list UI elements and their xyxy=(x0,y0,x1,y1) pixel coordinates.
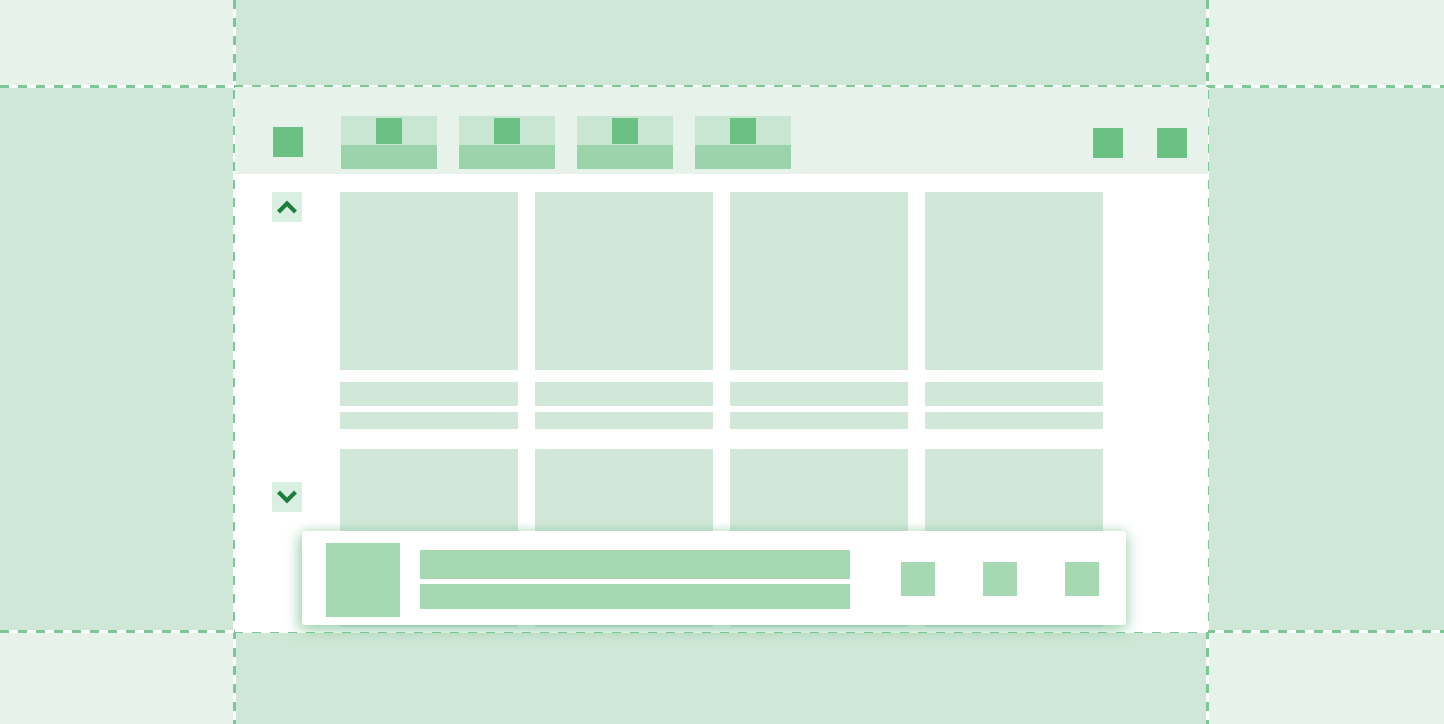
chevron-up-icon xyxy=(272,192,302,222)
notification-toast xyxy=(302,531,1126,625)
background-region-top xyxy=(235,0,1208,87)
tab[interactable] xyxy=(695,116,791,169)
card[interactable] xyxy=(925,192,1103,429)
card-title-line-placeholder xyxy=(730,382,908,406)
tab-thumbnail-square-icon xyxy=(376,118,402,144)
card-subtitle-line-placeholder xyxy=(925,412,1103,429)
card-image-placeholder xyxy=(535,192,713,370)
tab-thumbnail-square-icon xyxy=(494,118,520,144)
tab-label-bar xyxy=(459,145,555,169)
app-square-icon[interactable] xyxy=(273,127,303,157)
card-subtitle-line-placeholder xyxy=(730,412,908,429)
toolbar-action-square-icon[interactable] xyxy=(1157,128,1187,158)
background-region-right xyxy=(1208,87,1444,632)
toolbar-tabs xyxy=(341,116,791,169)
background-region-bottom xyxy=(235,632,1208,724)
scroll-up-button[interactable] xyxy=(272,192,302,222)
window-toolbar xyxy=(235,87,1208,174)
card-title-line-placeholder xyxy=(340,382,518,406)
toolbar-actions xyxy=(1093,128,1187,158)
card-image-placeholder xyxy=(925,192,1103,370)
card-title-line-placeholder xyxy=(925,382,1103,406)
card[interactable] xyxy=(340,192,518,429)
tab-label-bar xyxy=(341,145,437,169)
card[interactable] xyxy=(730,192,908,429)
tab-thumbnail-square-icon xyxy=(612,118,638,144)
toast-action-square-icon[interactable] xyxy=(901,562,935,596)
tab[interactable] xyxy=(341,116,437,169)
avatar-square-placeholder xyxy=(326,543,400,617)
toast-buttons xyxy=(901,562,1099,596)
toast-action-square-icon[interactable] xyxy=(1065,562,1099,596)
wireframe-illustration xyxy=(0,0,1444,724)
tab-thumbnail-area xyxy=(695,116,791,145)
background-region-left xyxy=(0,87,235,632)
tab-label-bar xyxy=(695,145,791,169)
toast-text-line-placeholder xyxy=(420,550,850,579)
tab[interactable] xyxy=(577,116,673,169)
toast-action-square-icon[interactable] xyxy=(983,562,1017,596)
tab-thumbnail-area xyxy=(577,116,673,145)
tab-thumbnail-area xyxy=(341,116,437,145)
tab-thumbnail-square-icon xyxy=(730,118,756,144)
card-subtitle-line-placeholder xyxy=(340,412,518,429)
toolbar-action-square-icon[interactable] xyxy=(1093,128,1123,158)
toast-text-lines xyxy=(420,550,850,609)
tab-label-bar xyxy=(577,145,673,169)
toast-text-line-placeholder xyxy=(420,584,850,609)
scroll-down-button[interactable] xyxy=(272,482,302,512)
card-title-line-placeholder xyxy=(535,382,713,406)
tab-thumbnail-area xyxy=(459,116,555,145)
card-image-placeholder xyxy=(340,192,518,370)
card[interactable] xyxy=(535,192,713,429)
card-subtitle-line-placeholder xyxy=(535,412,713,429)
tab[interactable] xyxy=(459,116,555,169)
card-image-placeholder xyxy=(730,192,908,370)
chevron-down-icon xyxy=(272,482,302,512)
